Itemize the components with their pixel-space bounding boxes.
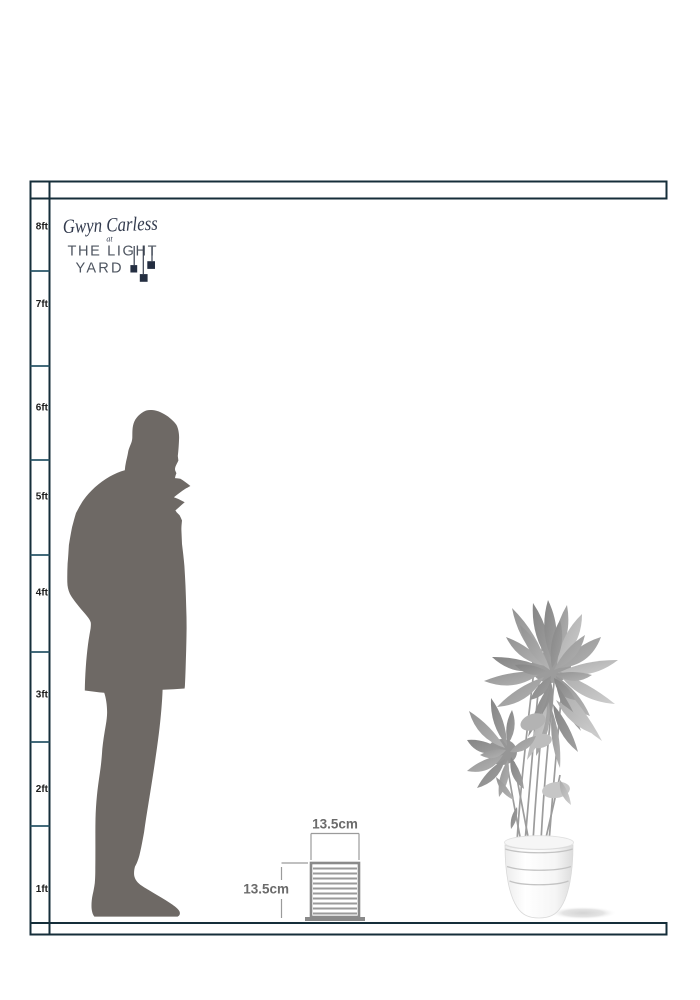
- svg-text:3ft: 3ft: [36, 689, 49, 700]
- svg-text:YARD: YARD: [76, 260, 124, 276]
- svg-text:THE LIGHT: THE LIGHT: [68, 244, 159, 260]
- svg-text:1ft: 1ft: [36, 884, 49, 895]
- svg-text:6ft: 6ft: [36, 402, 49, 413]
- svg-text:2ft: 2ft: [36, 784, 49, 795]
- svg-text:5ft: 5ft: [36, 492, 49, 503]
- svg-text:4ft: 4ft: [36, 587, 49, 598]
- svg-text:13.5cm: 13.5cm: [243, 882, 289, 897]
- svg-text:7ft: 7ft: [36, 299, 49, 310]
- svg-text:8ft: 8ft: [36, 221, 49, 232]
- svg-text:at: at: [106, 235, 113, 244]
- svg-text:13.5cm: 13.5cm: [312, 817, 358, 832]
